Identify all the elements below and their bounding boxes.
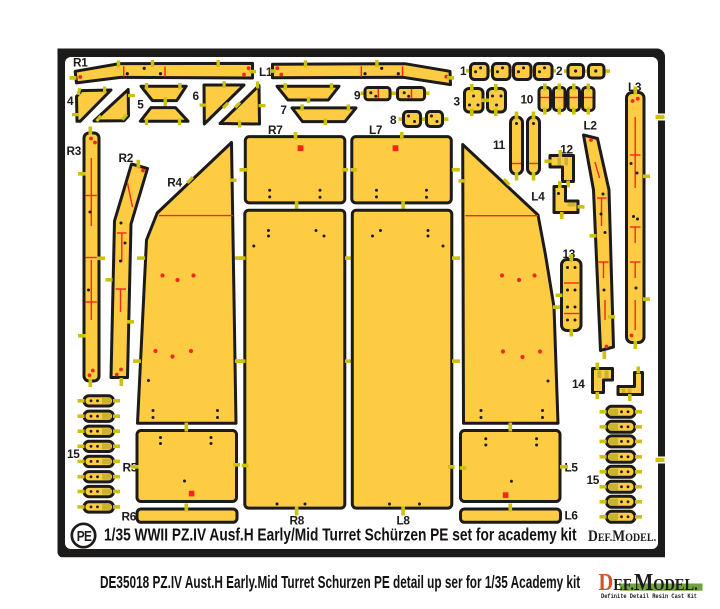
svg-text:15: 15 bbox=[587, 473, 600, 487]
svg-text:PE: PE bbox=[77, 528, 92, 544]
svg-text:L6: L6 bbox=[565, 509, 579, 523]
svg-text:15: 15 bbox=[67, 447, 80, 461]
svg-text:DEF.MODEL.: DEF.MODEL. bbox=[588, 528, 656, 545]
svg-text:8: 8 bbox=[390, 113, 397, 127]
svg-text:L7: L7 bbox=[369, 123, 383, 137]
svg-text:2: 2 bbox=[556, 64, 563, 78]
svg-text:Definite Detail Resin Cast Kit: Definite Detail Resin Cast Kit bbox=[601, 593, 697, 601]
svg-text:L2: L2 bbox=[584, 119, 598, 133]
svg-text:10: 10 bbox=[521, 93, 534, 107]
svg-text:L4: L4 bbox=[531, 190, 545, 204]
svg-text:1: 1 bbox=[460, 64, 467, 78]
svg-text:7: 7 bbox=[280, 103, 287, 117]
svg-text:1/35 WWII PZ.IV Ausf.H Early/M: 1/35 WWII PZ.IV Ausf.H Early/Mid Turret … bbox=[104, 526, 577, 545]
svg-text:R6: R6 bbox=[122, 510, 137, 524]
svg-text:R4: R4 bbox=[167, 175, 182, 189]
svg-text:R7: R7 bbox=[268, 123, 283, 137]
svg-text:3: 3 bbox=[454, 95, 461, 109]
svg-text:9: 9 bbox=[354, 89, 361, 103]
svg-text:R3: R3 bbox=[67, 144, 82, 158]
svg-text:DE35018 PZ.IV Aust.H Early.Mid: DE35018 PZ.IV Aust.H Early.Mid Turret Sc… bbox=[100, 574, 580, 593]
svg-text:6: 6 bbox=[193, 89, 200, 103]
svg-text:5: 5 bbox=[137, 98, 144, 112]
svg-text:4: 4 bbox=[67, 94, 74, 108]
svg-text:11: 11 bbox=[493, 138, 506, 152]
svg-text:14: 14 bbox=[572, 377, 585, 391]
svg-text:R1: R1 bbox=[73, 56, 88, 70]
